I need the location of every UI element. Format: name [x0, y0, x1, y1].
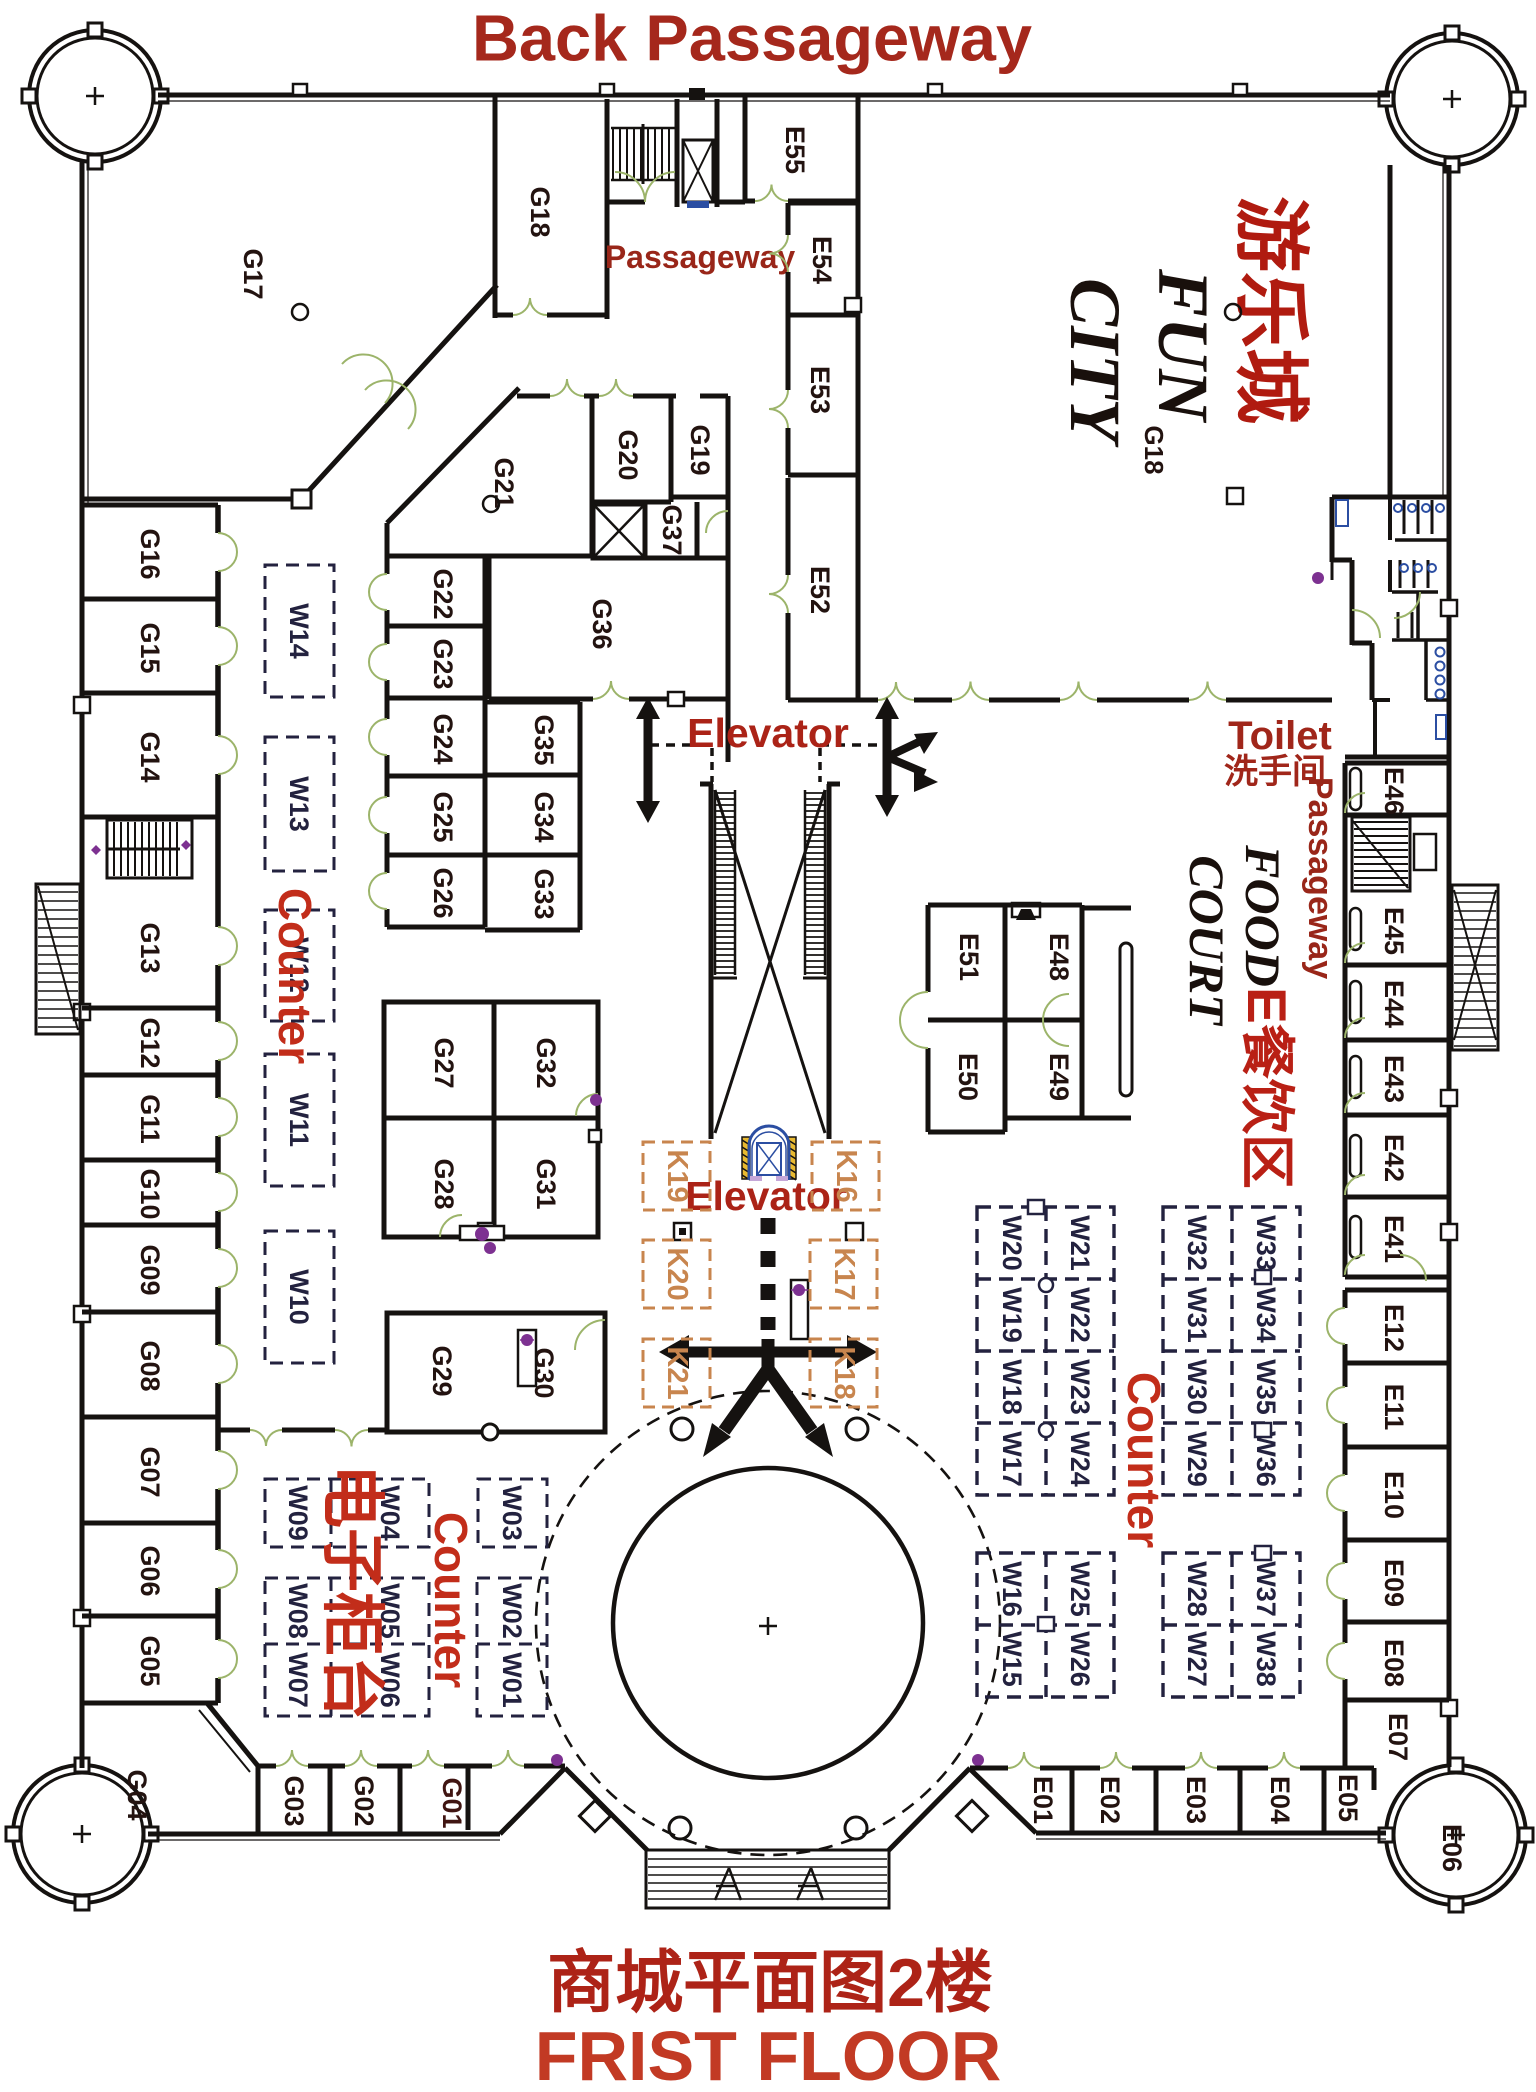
svg-text:W29: W29 — [1182, 1431, 1212, 1487]
svg-text:G18: G18 — [525, 186, 555, 237]
svg-text:G26: G26 — [428, 867, 458, 918]
svg-text:G01: G01 — [437, 1777, 467, 1828]
svg-text:W09: W09 — [283, 1485, 313, 1541]
svg-text:E43: E43 — [1379, 1055, 1409, 1103]
svg-text:W28: W28 — [1182, 1561, 1212, 1617]
svg-text:E53: E53 — [805, 366, 835, 414]
svg-text:G21: G21 — [489, 457, 519, 508]
svg-text:G29: G29 — [427, 1345, 457, 1396]
svg-text:E42: E42 — [1379, 1134, 1409, 1182]
svg-text:电子柜台: 电子柜台 — [316, 1464, 388, 1720]
svg-text:G05: G05 — [135, 1635, 165, 1686]
svg-text:W37: W37 — [1251, 1561, 1281, 1617]
svg-text:E03: E03 — [1181, 1776, 1211, 1824]
svg-text:E08: E08 — [1379, 1639, 1409, 1687]
svg-text:FRIST FLOOR: FRIST FLOOR — [535, 2017, 1002, 2092]
svg-text:K19: K19 — [661, 1149, 693, 1202]
svg-text:商城平面图2楼: 商城平面图2楼 — [547, 1945, 993, 2021]
svg-text:W11: W11 — [284, 1093, 314, 1147]
svg-text:K17: K17 — [828, 1247, 860, 1300]
svg-text:G06: G06 — [135, 1545, 165, 1596]
svg-text:G36: G36 — [587, 598, 617, 649]
svg-text:Passageway: Passageway — [1301, 777, 1339, 979]
svg-text:G18: G18 — [1139, 425, 1169, 474]
svg-text:W17: W17 — [997, 1431, 1027, 1487]
svg-text:W02: W02 — [497, 1583, 527, 1639]
svg-text:Counter: Counter — [425, 1512, 477, 1688]
svg-text:G34: G34 — [529, 791, 559, 842]
svg-text:G35: G35 — [529, 714, 559, 765]
svg-text:W27: W27 — [1182, 1631, 1212, 1687]
svg-text:E05: E05 — [1333, 1774, 1363, 1822]
svg-text:G17: G17 — [238, 248, 268, 299]
svg-text:W21: W21 — [1065, 1215, 1095, 1271]
svg-text:E02: E02 — [1095, 1776, 1125, 1824]
svg-text:G04: G04 — [122, 1769, 152, 1820]
svg-text:W23: W23 — [1065, 1359, 1095, 1415]
svg-text:E44: E44 — [1379, 980, 1409, 1028]
svg-text:W14: W14 — [284, 603, 314, 659]
svg-text:W34: W34 — [1251, 1287, 1281, 1343]
svg-text:E12: E12 — [1379, 1304, 1409, 1352]
svg-text:E07: E07 — [1383, 1713, 1413, 1761]
svg-text:W36: W36 — [1251, 1431, 1281, 1487]
svg-text:W25: W25 — [1065, 1561, 1095, 1617]
svg-text:G11: G11 — [135, 1094, 165, 1144]
svg-text:Back Passageway: Back Passageway — [472, 2, 1032, 75]
svg-text:W20: W20 — [997, 1215, 1027, 1271]
svg-text:E52: E52 — [805, 566, 835, 614]
svg-text:W35: W35 — [1251, 1359, 1281, 1415]
svg-text:W30: W30 — [1182, 1359, 1212, 1415]
svg-text:W08: W08 — [283, 1583, 313, 1639]
svg-text:G16: G16 — [135, 528, 165, 579]
svg-text:G32: G32 — [531, 1037, 561, 1088]
svg-text:G07: G07 — [135, 1446, 165, 1497]
svg-text:W38: W38 — [1251, 1631, 1281, 1687]
svg-text:K18: K18 — [828, 1346, 860, 1399]
svg-text:FUN: FUN — [1143, 268, 1223, 424]
svg-text:G23: G23 — [428, 638, 458, 689]
svg-text:Passageway: Passageway — [605, 239, 796, 275]
svg-text:G37: G37 — [657, 504, 687, 555]
svg-text:G10: G10 — [135, 1168, 165, 1219]
svg-text:G33: G33 — [529, 868, 559, 919]
svg-text:G15: G15 — [135, 622, 165, 673]
svg-text:E06: E06 — [1437, 1824, 1467, 1872]
svg-text:G22: G22 — [428, 568, 458, 619]
svg-text:G27: G27 — [429, 1037, 459, 1088]
svg-text:Counter: Counter — [1118, 1372, 1170, 1548]
svg-text:G19: G19 — [685, 424, 715, 475]
svg-text:K20: K20 — [661, 1247, 693, 1300]
svg-text:E51: E51 — [954, 933, 984, 981]
svg-text:W07: W07 — [283, 1652, 313, 1708]
svg-text:W13: W13 — [284, 776, 314, 832]
svg-text:K21: K21 — [661, 1346, 693, 1399]
svg-text:W10: W10 — [284, 1269, 314, 1325]
svg-text:E48: E48 — [1044, 933, 1074, 981]
svg-text:W01: W01 — [497, 1652, 527, 1708]
svg-text:G14: G14 — [135, 731, 165, 782]
svg-text:W22: W22 — [1065, 1287, 1095, 1343]
svg-text:W03: W03 — [497, 1485, 527, 1541]
svg-text:COURT: COURT — [1179, 855, 1235, 1027]
svg-text:G13: G13 — [135, 922, 165, 973]
svg-text:E餐饮区: E餐饮区 — [1236, 987, 1298, 1189]
svg-text:W33: W33 — [1251, 1215, 1281, 1271]
svg-text:E01: E01 — [1028, 1776, 1058, 1824]
svg-text:G12: G12 — [135, 1017, 165, 1068]
svg-text:E49: E49 — [1044, 1053, 1074, 1101]
svg-text:K16: K16 — [830, 1149, 862, 1202]
svg-text:W32: W32 — [1182, 1215, 1212, 1271]
svg-text:W15: W15 — [997, 1631, 1027, 1687]
svg-text:W24: W24 — [1065, 1431, 1095, 1487]
svg-text:E50: E50 — [953, 1053, 983, 1101]
svg-text:G31: G31 — [531, 1158, 561, 1209]
svg-text:E55: E55 — [780, 126, 810, 174]
svg-text:E46: E46 — [1379, 767, 1409, 815]
svg-text:E04: E04 — [1265, 1776, 1295, 1824]
svg-text:Elevator: Elevator — [687, 710, 849, 756]
svg-text:E11: E11 — [1379, 1384, 1409, 1431]
svg-text:G02: G02 — [349, 1775, 379, 1826]
svg-text:G03: G03 — [279, 1775, 309, 1826]
svg-text:E09: E09 — [1379, 1559, 1409, 1607]
svg-text:G08: G08 — [135, 1340, 165, 1391]
svg-text:W26: W26 — [1065, 1631, 1095, 1687]
svg-text:E54: E54 — [807, 236, 837, 284]
svg-text:E45: E45 — [1379, 907, 1409, 955]
svg-text:Toilet: Toilet — [1228, 714, 1332, 758]
svg-text:E10: E10 — [1379, 1471, 1409, 1519]
svg-text:FOOD: FOOD — [1235, 844, 1291, 987]
svg-text:G20: G20 — [613, 429, 643, 480]
svg-text:Counter: Counter — [269, 888, 321, 1064]
svg-text:W19: W19 — [997, 1287, 1027, 1343]
svg-text:G09: G09 — [135, 1244, 165, 1295]
svg-text:W18: W18 — [997, 1359, 1027, 1415]
svg-text:W16: W16 — [997, 1561, 1027, 1617]
svg-text:G28: G28 — [429, 1158, 459, 1209]
svg-text:G24: G24 — [428, 713, 458, 764]
svg-text:G25: G25 — [428, 791, 458, 842]
svg-text:CITY: CITY — [1055, 278, 1135, 448]
svg-text:W31: W31 — [1182, 1287, 1212, 1343]
